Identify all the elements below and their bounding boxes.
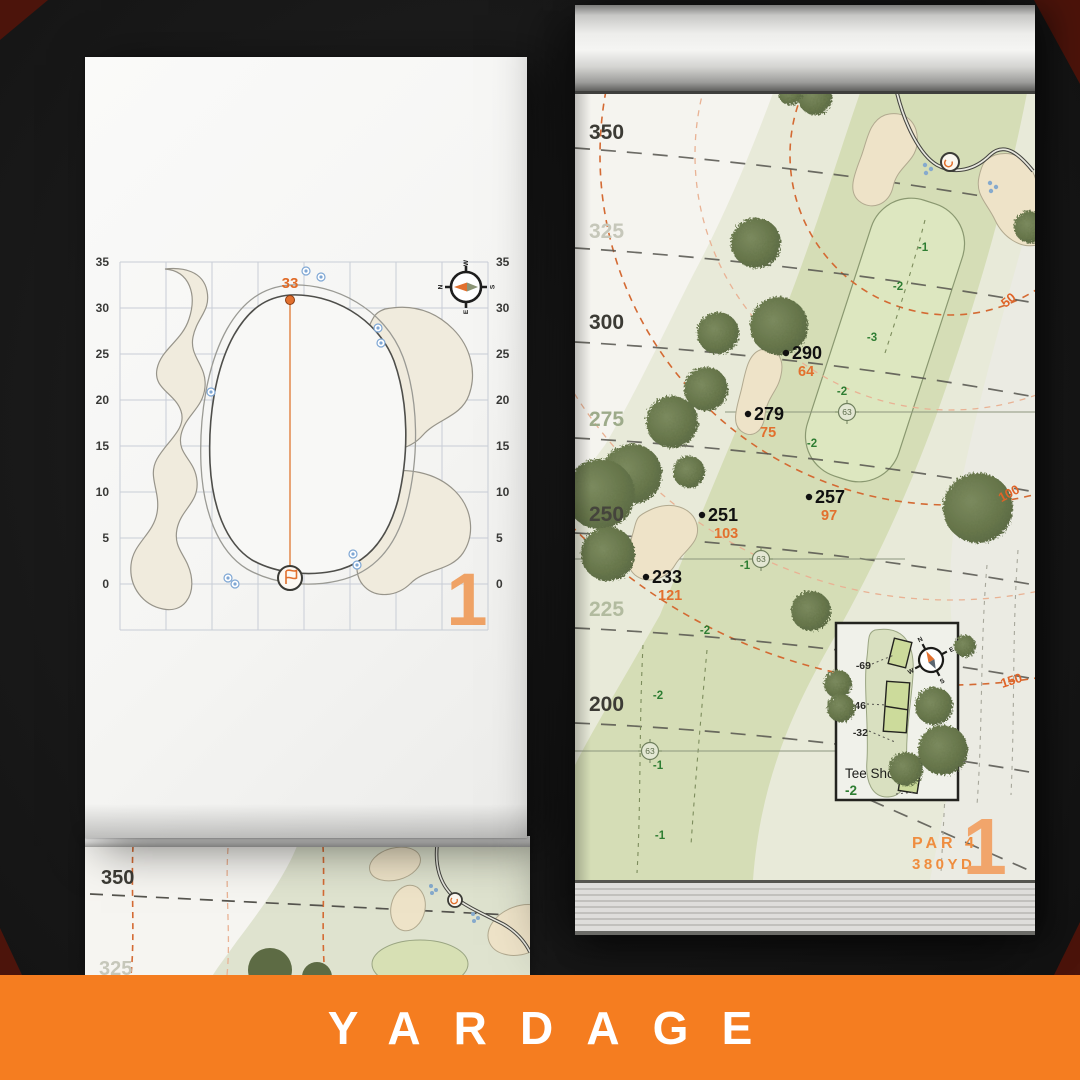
distance-label: 275 [589,408,624,431]
green-axis-right: 35 30 25 20 15 10 5 0 [496,255,510,591]
pin-yards: 103 [714,526,738,542]
carry-yards: 279 [754,404,784,424]
distance-label: 325 [589,220,624,243]
carry-yards: 290 [792,343,822,363]
axis-label: 25 [96,347,110,361]
axis-label: 25 [496,347,510,361]
compass-n: N [438,284,445,289]
axis-label: 15 [496,439,510,453]
axis-label: 30 [496,301,510,315]
top-binding-roll [575,5,1035,94]
hole-map-page: 63 63 63 -1 -2 [575,5,1035,935]
slope-label: -2 [893,281,903,293]
distance-label: 350 [101,867,134,889]
carry-yards: 233 [652,567,682,587]
bunker-left [131,269,208,610]
hole-map-artwork: 63 63 63 -1 -2 [575,5,1035,891]
partial-hole-map: 350 325 [85,836,530,975]
axis-label: 10 [96,485,110,499]
backdrop-corner-top-right [1034,0,1080,84]
axis-label: 15 [96,439,110,453]
compass-w: W [463,259,470,266]
axis-label: 35 [96,255,110,269]
backdrop-corner-bottom-left [0,928,22,975]
axis-label: 10 [496,485,510,499]
green-axis-left: 35 30 25 20 15 10 5 0 [96,255,110,591]
slope-label: -2 [837,386,847,398]
green-detail-map: 35 30 25 20 15 10 5 0 35 30 25 20 15 10 … [85,57,527,838]
slope-label: -1 [655,830,666,842]
pin-yards: 97 [821,508,837,524]
distance-label: 250 [589,503,624,526]
axis-label: 5 [102,531,109,545]
distance-label: 225 [589,598,624,621]
banner-title: YARDAGE [295,1001,786,1055]
axis-label: 5 [496,531,503,545]
compass-s: S [490,284,497,289]
carry-yards: 257 [815,487,845,507]
pin-yards: 121 [658,588,682,604]
hole-number: 1 [963,802,1008,891]
slope-label: -1 [653,760,664,772]
distance-label: 350 [589,121,624,144]
pin-distance-label: 33 [282,275,299,292]
axis-label: 0 [102,577,109,591]
sprinkler-value: 63 [842,407,852,417]
compass-e: E [463,309,470,314]
tee-offset: -69 [856,660,871,672]
sprinkler-value: 63 [645,746,655,756]
hole-map: 63 63 63 -1 -2 [575,5,1035,935]
carry-yards: 251 [708,505,738,525]
pin-yards: 75 [760,425,776,441]
slope-label: -1 [740,560,751,572]
green-marker [941,153,959,171]
axis-label: 30 [96,301,110,315]
tee-shot-slope: -2 [845,783,857,798]
distance-label: 325 [99,958,132,975]
slope-label: -3 [867,332,877,344]
axis-label: 20 [96,393,110,407]
distance-label: 300 [589,311,624,334]
pin-yards: 64 [798,364,814,380]
slope-label: -2 [700,625,710,637]
green-detail-page: 35 30 25 20 15 10 5 0 35 30 25 20 15 10 … [85,57,527,838]
axis-label: 20 [496,393,510,407]
slope-label: -1 [918,242,929,254]
tee-offset: -32 [853,727,868,739]
slope-label: -2 [653,690,663,702]
backdrop-corner-bottom-right [1054,922,1080,975]
backdrop-corner-top-left [0,0,48,40]
yardage-book-scene: 35 30 25 20 15 10 5 0 35 30 25 20 15 10 … [0,0,1080,1080]
slope-label: -2 [807,438,817,450]
sprinkler-value: 63 [756,554,766,564]
axis-label: 0 [496,577,503,591]
next-hole-partial-page: 350 325 [85,836,530,975]
yardage-banner: YARDAGE [0,975,1080,1080]
hole-number: 1 [446,558,487,641]
axis-label: 35 [496,255,510,269]
page-stack-edges [575,880,1035,935]
distance-label: 200 [589,693,624,716]
pin-dot [286,296,295,305]
